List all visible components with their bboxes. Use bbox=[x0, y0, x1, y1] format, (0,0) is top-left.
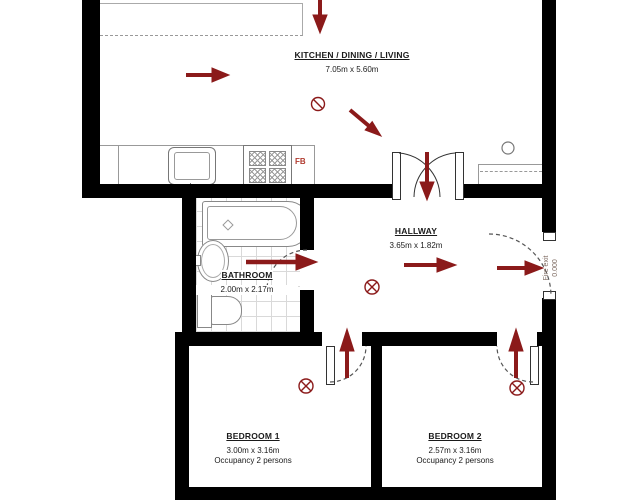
room-name: BATHROOM bbox=[221, 270, 272, 280]
bedroom1-label: BEDROOM 1 3.00m x 3.16m Occupancy 2 pers… bbox=[193, 425, 313, 467]
circle-marker-icon bbox=[502, 142, 514, 154]
kitchen-label: KITCHEN / DINING / LIVING 7.05m x 5.60m bbox=[292, 44, 412, 75]
room-name: KITCHEN / DINING / LIVING bbox=[294, 50, 409, 60]
door-leaf bbox=[455, 152, 464, 200]
room-name: HALLWAY bbox=[395, 226, 437, 236]
fire-blanket-label: FB bbox=[295, 157, 306, 166]
hob-burner bbox=[269, 168, 286, 183]
room-dimensions: 3.00m x 3.16m bbox=[193, 446, 313, 456]
wall bbox=[542, 0, 556, 232]
room-dimensions: 7.05m x 5.60m bbox=[292, 65, 412, 75]
bathroom-label: BATHROOM 2.00m x 2.17m bbox=[196, 264, 298, 295]
room-name: BEDROOM 2 bbox=[428, 431, 481, 441]
door-leaf bbox=[530, 346, 539, 385]
worktop bbox=[95, 3, 303, 36]
bathtub-inner bbox=[207, 206, 297, 240]
wall bbox=[537, 332, 556, 346]
fire-exit-text: Fire exit bbox=[543, 256, 552, 281]
wall bbox=[175, 332, 189, 500]
circled-slash-icon bbox=[312, 98, 325, 111]
circled-cross-icon bbox=[510, 381, 524, 395]
counter-divider bbox=[118, 145, 119, 186]
hob-burner bbox=[249, 151, 266, 166]
wall bbox=[82, 0, 100, 198]
wall bbox=[82, 184, 392, 198]
room-occupancy: Occupancy 2 persons bbox=[395, 456, 515, 466]
wall bbox=[300, 198, 314, 250]
wall bbox=[542, 298, 556, 492]
wall bbox=[300, 290, 314, 332]
room-dimensions: 2.00m x 2.17m bbox=[196, 285, 298, 295]
wall bbox=[175, 332, 322, 346]
room-dimensions: 2.57m x 3.16m bbox=[395, 446, 515, 456]
toilet-bowl bbox=[211, 296, 242, 325]
toilet-cistern bbox=[197, 293, 212, 328]
room-occupancy: Occupancy 2 persons bbox=[193, 456, 313, 466]
fire-exit-value: 0.000 bbox=[552, 259, 561, 277]
floor-plan: KITCHEN / DINING / LIVING 7.05m x 5.60m … bbox=[0, 0, 632, 500]
room-dimensions: 3.65m x 1.82m bbox=[366, 241, 466, 251]
sink-basin bbox=[174, 152, 210, 180]
wall bbox=[175, 487, 556, 500]
circled-cross-icon bbox=[299, 379, 313, 393]
fire-exit-label: Fire exit 0.000 bbox=[524, 240, 580, 296]
door-leaf bbox=[392, 152, 401, 200]
room-name: BEDROOM 1 bbox=[226, 431, 279, 441]
circled-cross-icon bbox=[365, 280, 379, 294]
hob-burner bbox=[269, 151, 286, 166]
hallway-label: HALLWAY 3.65m x 1.82m bbox=[366, 220, 466, 251]
wall bbox=[362, 332, 497, 346]
wall bbox=[182, 198, 196, 332]
door-leaf bbox=[326, 346, 335, 385]
wall bbox=[371, 346, 382, 500]
hob-burner bbox=[249, 168, 266, 183]
bedroom2-label: BEDROOM 2 2.57m x 3.16m Occupancy 2 pers… bbox=[395, 425, 515, 467]
storage-unit-line bbox=[480, 171, 542, 172]
